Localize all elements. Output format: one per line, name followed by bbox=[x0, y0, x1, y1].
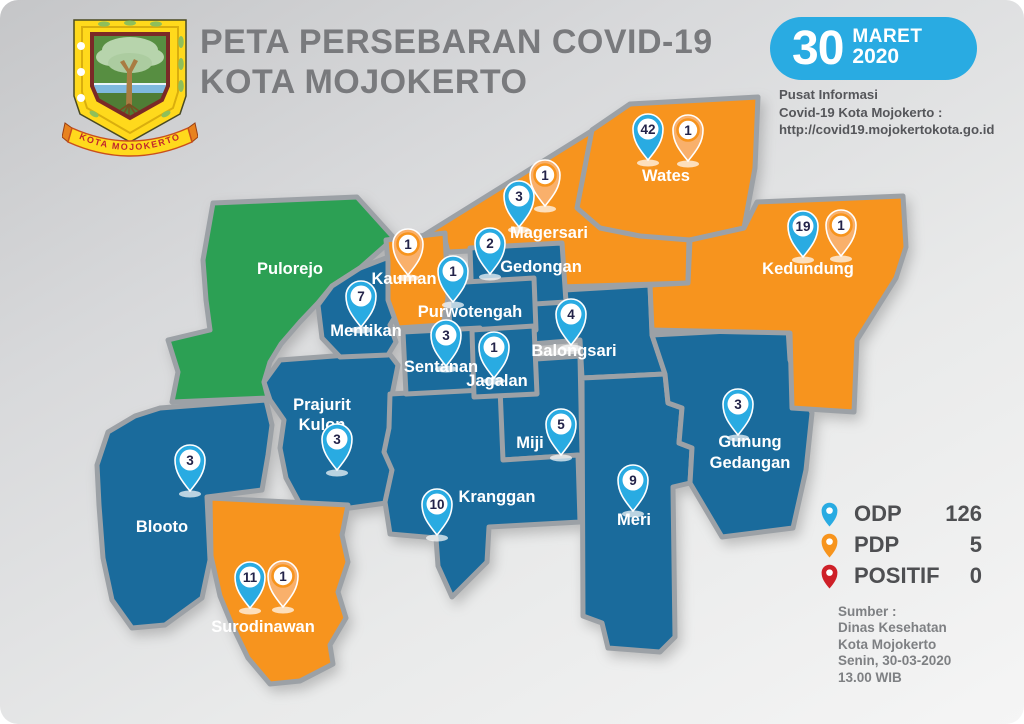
svg-text:19: 19 bbox=[795, 219, 810, 234]
page-title-line2: KOTA MOJOKERTO bbox=[200, 62, 713, 102]
svg-text:2: 2 bbox=[486, 236, 494, 251]
legend-row-positif: POSITIF 0 bbox=[818, 560, 982, 591]
positif-pin-icon bbox=[818, 561, 841, 590]
infographic-canvas: Pulorejo Kauman Magersari Wates Kedundun… bbox=[0, 0, 1024, 724]
legend: ODP 126 PDP 5 POSITIF 0 bbox=[818, 498, 982, 591]
svg-text:3: 3 bbox=[442, 328, 450, 343]
date-badge-day: 30 bbox=[792, 21, 843, 76]
pdp-pin-icon bbox=[818, 530, 841, 559]
district-label-kranggan: Kranggan bbox=[458, 488, 535, 506]
info-url: http://covid19.mojokertokota.go.id bbox=[779, 121, 994, 139]
legend-row-odp: ODP 126 bbox=[818, 498, 982, 529]
page-title-line1: PETA PERSEBARAN COVID-19 bbox=[200, 22, 713, 62]
district-label-surodinawan: Surodinawan bbox=[211, 618, 315, 636]
source-line-3: Kota Mojokerto bbox=[838, 637, 951, 653]
svg-text:4: 4 bbox=[567, 307, 575, 322]
info-panel: Pusat Informasi Covid-19 Kota Mojokerto … bbox=[779, 86, 994, 139]
svg-text:7: 7 bbox=[357, 289, 365, 304]
svg-text:1: 1 bbox=[684, 123, 692, 138]
svg-text:1: 1 bbox=[449, 264, 457, 279]
legend-label-positif: POSITIF bbox=[854, 563, 940, 589]
source-panel: Sumber : Dinas Kesehatan Kota Mojokerto … bbox=[838, 604, 951, 686]
svg-text:1: 1 bbox=[837, 218, 845, 233]
city-logo: KOTA MOJOKERTO bbox=[62, 12, 198, 168]
svg-text:5: 5 bbox=[557, 417, 565, 432]
svg-text:3: 3 bbox=[333, 432, 341, 447]
district-label-prajurit-kulon-1: Prajurit bbox=[293, 396, 351, 414]
district-label-miji: Miji bbox=[516, 434, 544, 452]
district-label-gedongan: Gedongan bbox=[500, 258, 582, 276]
source-line-4: Senin, 30-03-2020 bbox=[838, 653, 951, 669]
svg-text:3: 3 bbox=[186, 453, 194, 468]
district-label-blooto: Blooto bbox=[136, 518, 188, 536]
svg-text:42: 42 bbox=[640, 122, 655, 137]
svg-text:10: 10 bbox=[429, 497, 444, 512]
svg-text:1: 1 bbox=[541, 168, 549, 183]
source-line-2: Dinas Kesehatan bbox=[838, 620, 951, 636]
info-line-1: Pusat Informasi bbox=[779, 86, 994, 104]
svg-text:3: 3 bbox=[734, 397, 742, 412]
source-line-5: 13.00 WIB bbox=[838, 670, 951, 686]
odp-pin-icon bbox=[818, 499, 841, 528]
district-label-purwotengah: Purwotengah bbox=[418, 303, 523, 321]
district-label-gunung-gedangan-2: Gedangan bbox=[710, 454, 791, 472]
svg-text:1: 1 bbox=[404, 237, 412, 252]
page-title: PETA PERSEBARAN COVID-19 KOTA MOJOKERTO bbox=[200, 22, 713, 102]
date-badge: 30 MARET 2020 bbox=[770, 17, 977, 80]
legend-label-pdp: PDP bbox=[854, 532, 936, 558]
district-map-group bbox=[97, 97, 906, 684]
date-badge-month: MARET bbox=[852, 27, 922, 47]
date-badge-month-year: MARET 2020 bbox=[852, 27, 922, 69]
legend-row-pdp: PDP 5 bbox=[818, 529, 982, 560]
legend-value-positif: 0 bbox=[940, 563, 982, 589]
district-label-pulorejo: Pulorejo bbox=[257, 260, 323, 278]
svg-text:11: 11 bbox=[243, 570, 258, 585]
district-label-gunung-gedangan-1: Gunung bbox=[718, 433, 781, 451]
legend-label-odp: ODP bbox=[854, 501, 936, 527]
legend-value-odp: 126 bbox=[936, 501, 982, 527]
district-label-wates: Wates bbox=[642, 167, 690, 185]
source-line-1: Sumber : bbox=[838, 604, 951, 620]
svg-text:3: 3 bbox=[515, 189, 523, 204]
legend-value-pdp: 5 bbox=[936, 532, 982, 558]
svg-text:9: 9 bbox=[629, 473, 637, 488]
date-badge-year: 2020 bbox=[852, 46, 922, 68]
svg-text:1: 1 bbox=[490, 340, 498, 355]
info-line-2: Covid-19 Kota Mojokerto : bbox=[779, 104, 994, 122]
svg-text:1: 1 bbox=[279, 569, 287, 584]
